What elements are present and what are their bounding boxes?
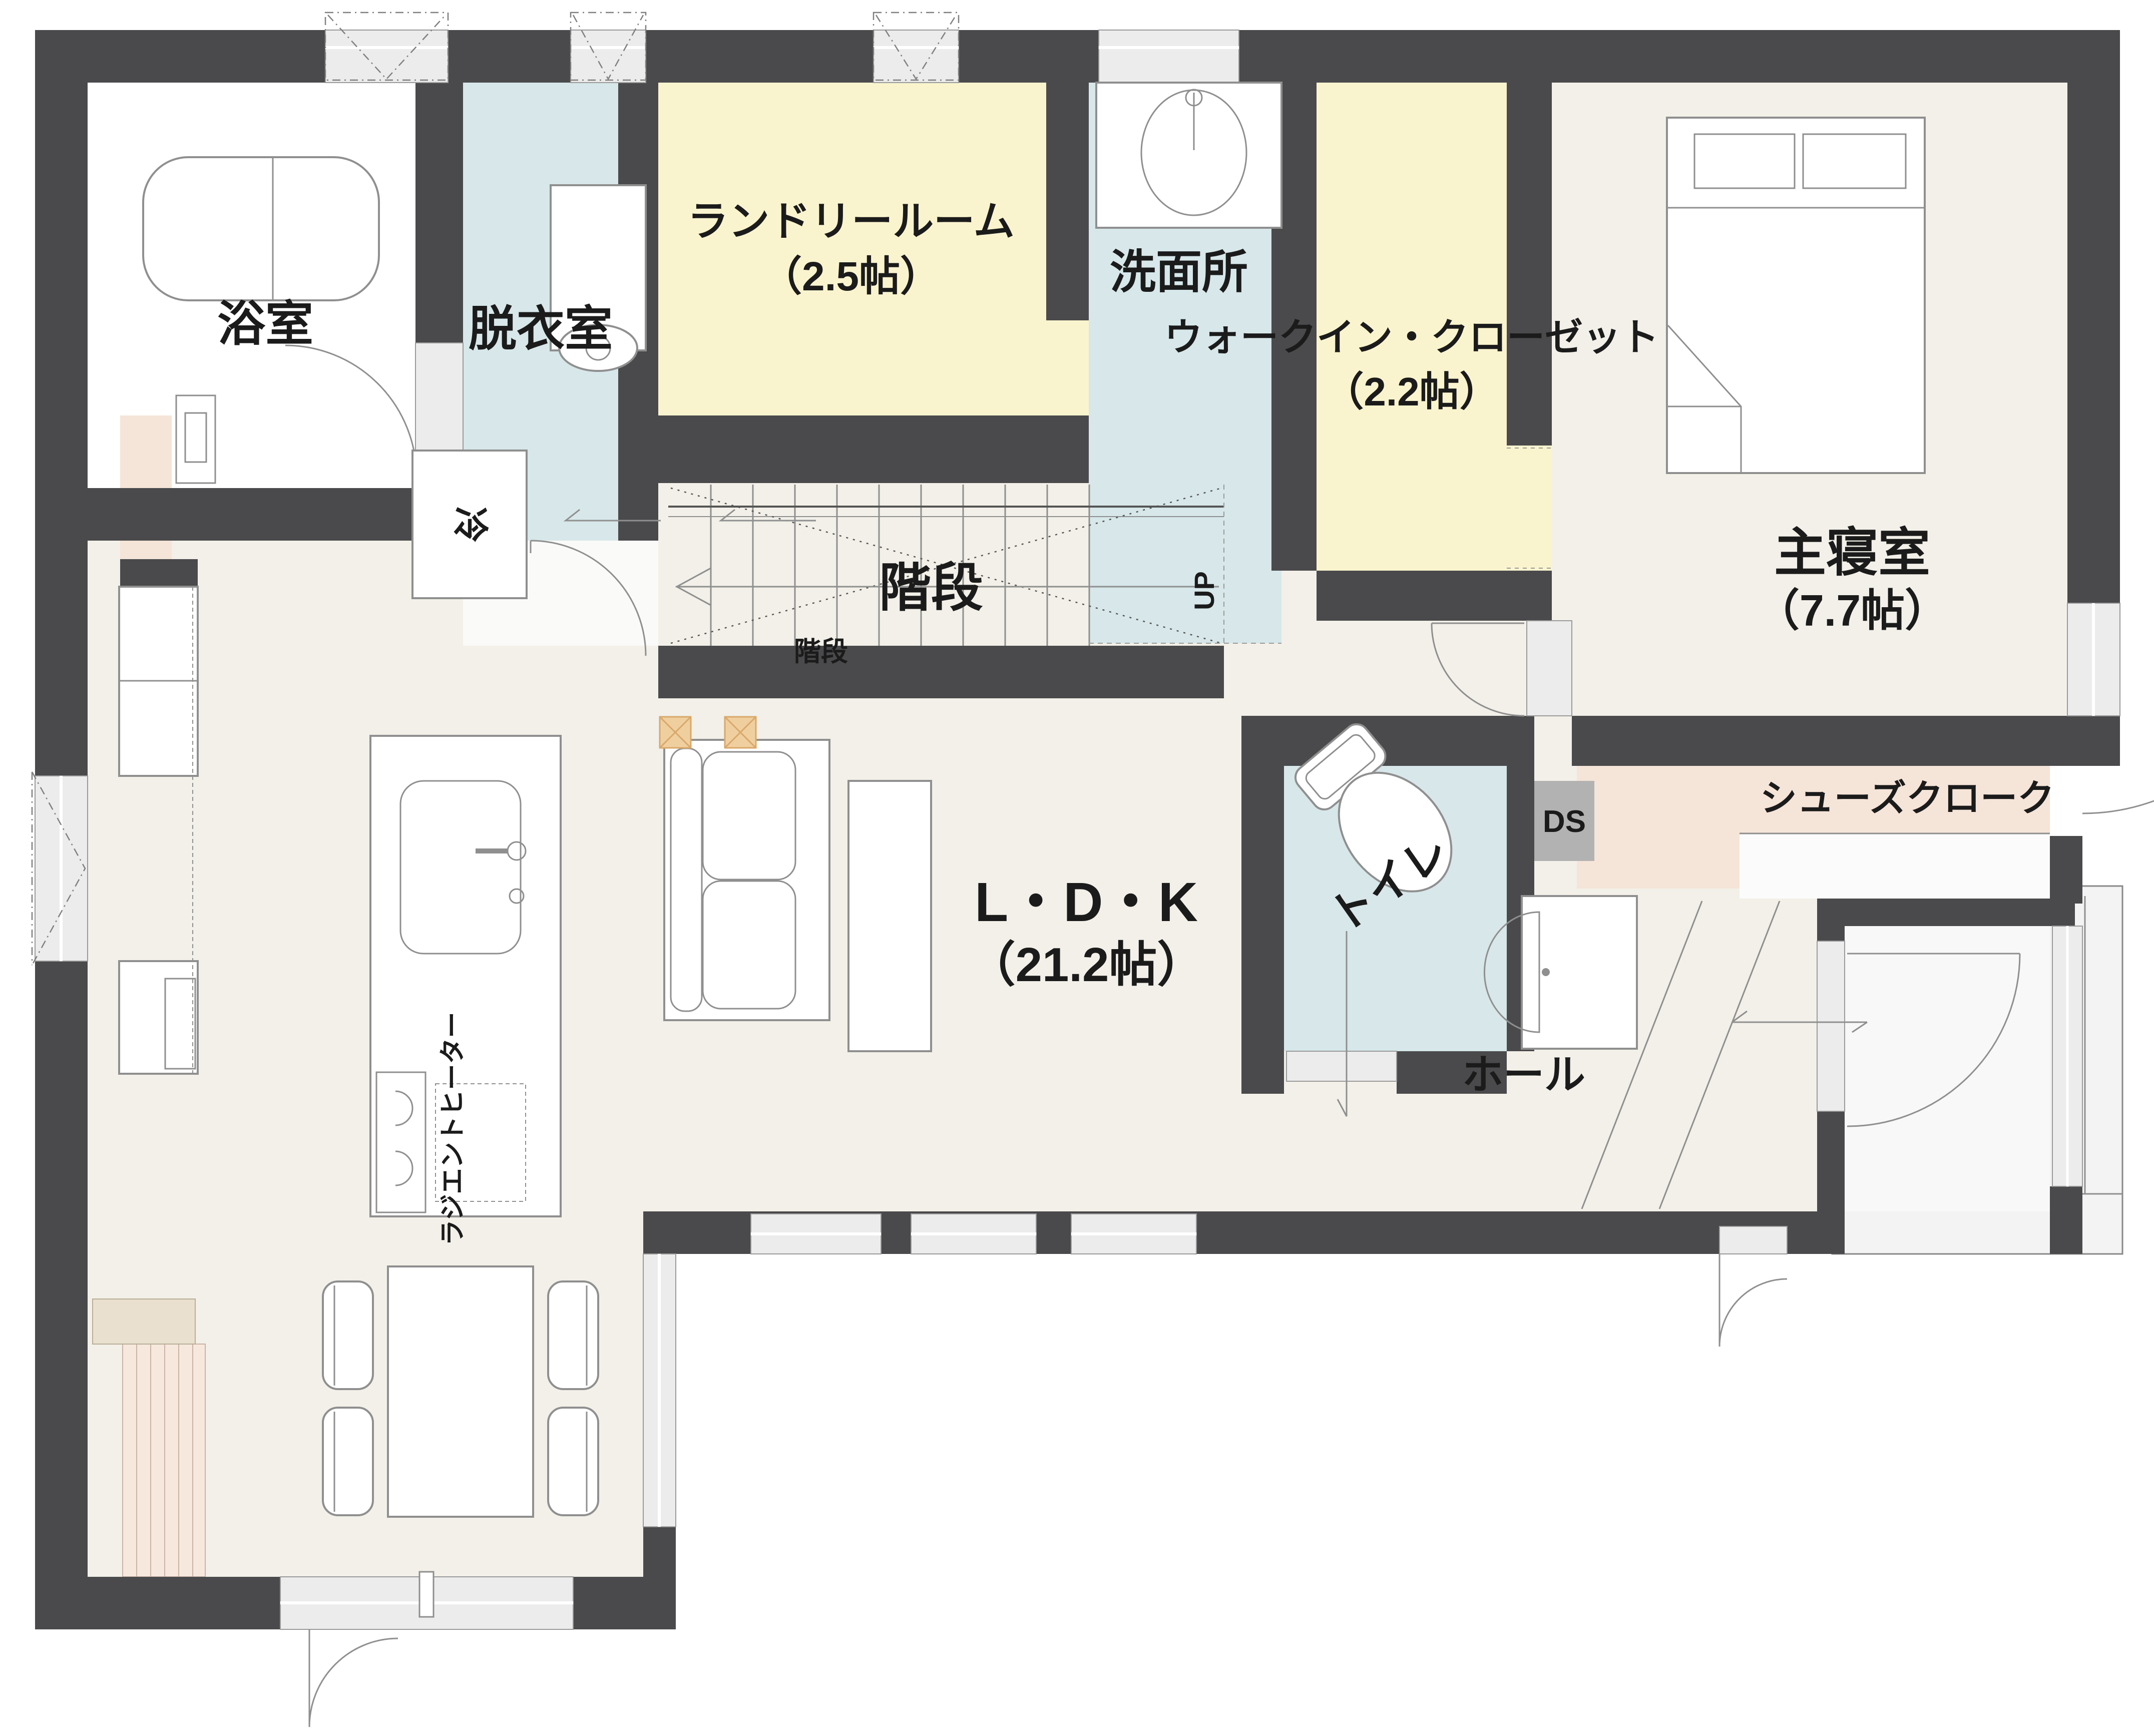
shoe-cloak-counter-left bbox=[1577, 766, 1740, 889]
hall-label: ホール bbox=[1462, 1052, 1585, 1098]
laundry-floor bbox=[658, 83, 1046, 415]
wic-label: ウォークイン・クローゼット bbox=[1164, 316, 1659, 359]
bathtub bbox=[143, 157, 379, 300]
bed bbox=[1667, 118, 1925, 473]
floor-plan-page: 浴室 脱衣室 ランドリールーム （2.5帖） 洗面所 ウォークイン・クローゼット… bbox=[0, 0, 2154, 1736]
bedroom-label: 主寝室 bbox=[1774, 524, 1930, 582]
front-door bbox=[2052, 926, 2082, 1186]
ldk-label: L・D・K bbox=[975, 872, 1198, 933]
stairs-label: 階段 bbox=[879, 559, 983, 617]
stairs-label-small: 階段 bbox=[794, 637, 848, 667]
wic-opening bbox=[1507, 446, 1552, 571]
laundry-washroom-opening bbox=[1046, 320, 1089, 415]
bottom-windows bbox=[751, 1214, 1196, 1254]
bedroom-area: （7.7帖） bbox=[1756, 586, 1949, 635]
floor-plan: 浴室 脱衣室 ランドリールーム （2.5帖） 洗面所 ウォークイン・クローゼット… bbox=[0, 0, 2154, 1736]
laundry-label: ランドリールーム bbox=[687, 199, 1015, 244]
left-window bbox=[32, 772, 88, 965]
dressing-label: 脱衣室 bbox=[469, 302, 613, 356]
heater-label: ラジエントヒーター bbox=[439, 1012, 468, 1246]
laundry-area: （2.5帖） bbox=[761, 254, 941, 299]
wic-area: （2.2帖） bbox=[1324, 369, 1499, 414]
fridge-label: 冷 bbox=[450, 507, 490, 543]
ds-label: DS bbox=[1543, 804, 1586, 839]
ldk-area: （21.2帖） bbox=[968, 938, 1205, 992]
left-block-window bbox=[643, 1254, 676, 1527]
washroom-sink bbox=[1096, 83, 1281, 228]
stairs-up-label: UP bbox=[1188, 571, 1220, 610]
sofa bbox=[664, 740, 829, 1020]
bedroom-east-door bbox=[2067, 603, 2154, 813]
bathroom-label: 浴室 bbox=[217, 297, 313, 351]
terrace-door bbox=[280, 1572, 573, 1727]
shoe-cloak-floor bbox=[1740, 833, 2050, 899]
shoe-cloak-label: シューズクローク bbox=[1760, 777, 2054, 819]
tv-board bbox=[848, 781, 931, 1051]
washroom-label: 洗面所 bbox=[1110, 247, 1248, 298]
deck-step bbox=[93, 1299, 195, 1344]
wood-deck bbox=[123, 1344, 205, 1577]
hall-back-door bbox=[1719, 1226, 1787, 1347]
